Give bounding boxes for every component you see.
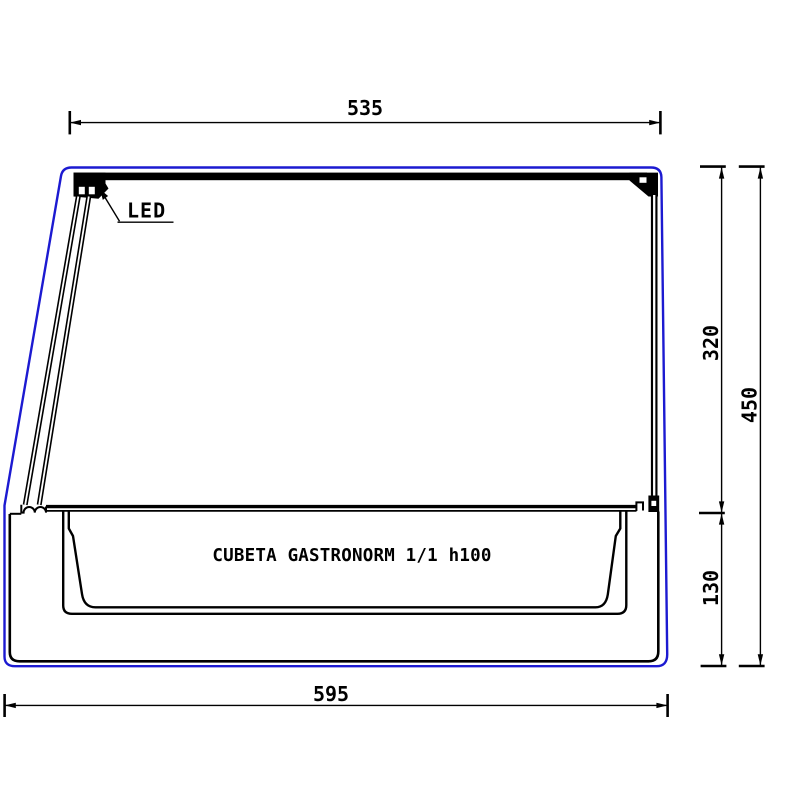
dimension-total-height: 450 (738, 167, 765, 666)
front-glass-panes (25, 197, 89, 505)
basin-label: CUBETA GASTRONORM 1/1 h100 (212, 546, 491, 566)
basin-height-value: 130 (699, 570, 723, 606)
counter-left-clamp-profile (21, 505, 46, 513)
led-label: LED (127, 199, 166, 223)
technical-drawing-canvas: LED CUBETA GASTRONORM 1/1 h100 535 595 3… (0, 0, 800, 800)
case-outer-outline (5, 168, 668, 667)
dimension-bottom-width: 595 (5, 682, 668, 717)
bottom-width-value: 595 (313, 682, 349, 706)
display-case-section-drawing: LED CUBETA GASTRONORM 1/1 h100 535 595 3… (0, 0, 800, 800)
counter-right-lip (636, 502, 643, 511)
rear-glass-pane (648, 195, 659, 512)
counter-top (10, 502, 643, 513)
total-height-value: 450 (738, 387, 762, 423)
canopy-right-fixture (630, 173, 659, 197)
canopy-bar (74, 173, 648, 181)
dimension-chain-320-130: 320 130 (699, 167, 726, 666)
cabinet-body-outline (10, 512, 659, 662)
dimension-top-width: 535 (70, 96, 661, 134)
upper-height-value: 320 (699, 325, 723, 361)
led-callout: LED (100, 189, 174, 222)
top-width-value: 535 (347, 96, 383, 120)
